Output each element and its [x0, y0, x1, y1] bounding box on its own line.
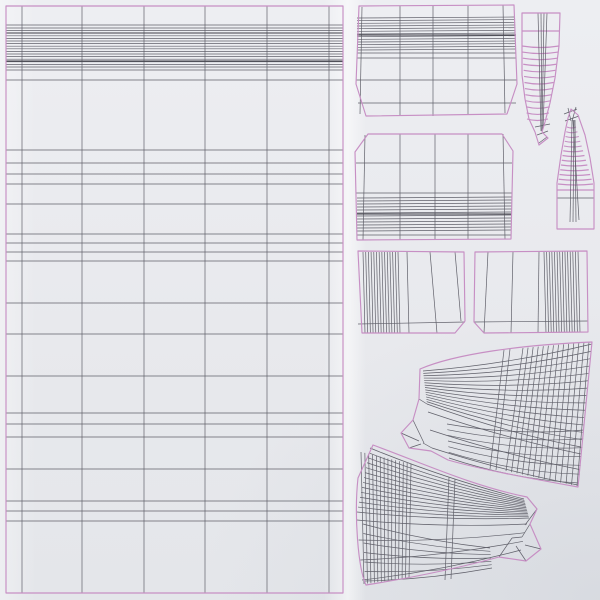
- uv-island-tassel-large: [522, 13, 560, 145]
- piece-wire-path: [484, 252, 488, 333]
- piece-outline-path: [356, 5, 517, 116]
- piece-wire-path: [357, 25, 515, 26]
- piece-outline-path: [523, 58, 557, 60]
- piece-wire-path: [385, 252, 387, 333]
- piece-wire-path: [503, 5, 505, 113]
- piece-wire-path: [357, 197, 512, 198]
- piece-wire-path: [363, 252, 365, 333]
- piece-wire-path: [357, 20, 515, 21]
- piece-wire-path: [363, 135, 365, 240]
- piece-wire-path: [427, 402, 582, 440]
- piece-outline-path: [6, 6, 343, 593]
- piece-outline-path: [525, 83, 554, 85]
- piece-wire-path: [357, 221, 511, 222]
- piece-outline-path: [523, 64, 556, 66]
- piece-outline-path: [522, 52, 558, 54]
- uv-island-pleat-strip-left: [358, 251, 465, 333]
- piece-wire-path: [406, 463, 408, 578]
- piece-wire-path: [557, 252, 559, 333]
- piece-wire-path: [365, 565, 492, 572]
- piece-wire-path: [387, 252, 389, 333]
- piece-wire-path: [525, 545, 541, 549]
- piece-outline-path: [565, 141, 581, 142]
- piece-outline-path: [524, 76, 554, 78]
- piece-wire-path: [561, 343, 574, 482]
- piece-wire-path: [570, 121, 572, 222]
- piece-wire-path: [572, 342, 584, 484]
- uv-island-main-panel: [6, 6, 343, 593]
- piece-wire-path: [503, 134, 505, 239]
- piece-wire-path: [357, 30, 515, 31]
- piece-wire-path: [449, 458, 579, 483]
- piece-wire-path: [455, 252, 461, 321]
- piece-wire-path: [516, 546, 526, 561]
- piece-wire-path: [361, 452, 364, 584]
- piece-outline-path: [559, 179, 592, 180]
- piece-wire-path: [535, 124, 550, 127]
- piece-wire-path: [570, 251, 572, 332]
- piece-outline-path: [522, 46, 559, 48]
- piece-wire-path: [573, 251, 575, 332]
- piece-wire-path: [357, 200, 512, 201]
- piece-outline-path: [526, 101, 551, 103]
- piece-wire-path: [357, 227, 511, 228]
- uv-island-swag-lower: [356, 445, 541, 585]
- piece-wire-path: [449, 452, 580, 474]
- piece-wire-path: [572, 107, 576, 121]
- piece-wire-path: [390, 252, 392, 333]
- piece-wire-path: [399, 461, 400, 579]
- uv-island-pleat-strip-right: [474, 251, 588, 333]
- piece-wire-path: [357, 218, 511, 219]
- piece-wire-path: [357, 22, 515, 23]
- piece-outline-path: [560, 170, 589, 171]
- piece-wire-path: [427, 404, 581, 447]
- piece-wire-path: [393, 252, 395, 333]
- piece-outline-path: [526, 107, 550, 109]
- piece-wire-path: [474, 321, 588, 322]
- uv-layout: [0, 0, 600, 600]
- piece-wire-path: [371, 252, 373, 333]
- piece-outline-path: [563, 151, 583, 152]
- piece-wire-path: [413, 420, 424, 443]
- piece-wire-path: [552, 252, 554, 333]
- piece-wire-path: [560, 252, 562, 333]
- piece-wire-path: [423, 443, 432, 448]
- piece-wire-path: [363, 534, 490, 552]
- piece-wire-path: [538, 252, 539, 333]
- piece-wire-path: [409, 444, 421, 448]
- piece-wire-path: [357, 44, 516, 45]
- piece-wire-path: [357, 17, 515, 18]
- piece-wire-path: [359, 533, 525, 541]
- piece-wire-path: [357, 38, 516, 39]
- piece-wire-path: [578, 251, 580, 332]
- piece-wire-path: [565, 251, 567, 332]
- piece-wire-path: [575, 251, 577, 332]
- piece-outline-path: [527, 113, 549, 115]
- piece-wire-path: [376, 252, 378, 333]
- piece-outline-path: [566, 137, 579, 138]
- piece-wire-path: [374, 252, 376, 333]
- piece-wire-path: [357, 212, 512, 213]
- piece-outline-path: [525, 89, 553, 91]
- piece-wire-path: [566, 343, 579, 484]
- uv-island-top-band-panel: [356, 5, 517, 116]
- piece-outline-path: [567, 127, 576, 128]
- piece-outline-path: [525, 95, 551, 97]
- piece-outline-path: [564, 146, 582, 147]
- piece-wire-path: [522, 524, 530, 537]
- piece-wire-path: [357, 203, 512, 204]
- piece-wire-path: [447, 424, 584, 432]
- piece-wire-path: [511, 252, 513, 333]
- piece-wire-path: [357, 215, 511, 216]
- piece-outline-path: [561, 165, 587, 166]
- piece-wire-path: [366, 252, 368, 333]
- piece-wire-path: [384, 458, 385, 582]
- piece-wire-path: [365, 568, 492, 581]
- piece-wire-path: [357, 36, 516, 37]
- piece-wire-path: [357, 46, 516, 47]
- piece-wire-path: [358, 322, 465, 324]
- piece-wire-path: [357, 224, 511, 225]
- piece-wire-path: [577, 342, 589, 486]
- piece-wire-path: [369, 454, 371, 583]
- piece-wire-path: [357, 33, 516, 34]
- piece-wire-path: [357, 520, 527, 525]
- piece-wire-path: [379, 252, 381, 333]
- piece-outline-path: [560, 175, 591, 176]
- piece-wire-path: [568, 251, 570, 332]
- piece-wire-path: [409, 464, 411, 578]
- piece-wire-path: [430, 252, 437, 333]
- piece-wire-path: [357, 206, 512, 207]
- piece-wire-path: [554, 252, 556, 333]
- piece-wire-path: [407, 252, 409, 333]
- piece-wire-path: [357, 230, 511, 231]
- piece-wire-path: [357, 209, 512, 210]
- piece-wire-path: [398, 252, 400, 333]
- piece-wire-path: [419, 399, 427, 404]
- piece-wire-path: [402, 462, 403, 579]
- piece-wire-path: [382, 252, 384, 333]
- piece-wire-path: [373, 455, 375, 583]
- piece-wire-path: [357, 49, 516, 50]
- piece-wire-path: [357, 28, 515, 29]
- piece-wire-path: [426, 397, 583, 425]
- piece-wire-path: [544, 252, 546, 333]
- piece-wire-path: [395, 252, 397, 333]
- uv-island-lower-band-panel: [355, 134, 513, 240]
- piece-wire-path: [425, 388, 587, 397]
- uv-island-swag-upper: [401, 342, 592, 487]
- piece-wire-path: [562, 251, 564, 332]
- uv-island-tassel-small: [557, 107, 594, 229]
- piece-wire-path: [549, 252, 551, 333]
- piece-wire-path: [512, 537, 522, 538]
- piece-wire-path: [368, 252, 370, 333]
- piece-wire-path: [357, 41, 516, 42]
- piece-wire-path: [547, 252, 549, 333]
- piece-wire-path: [363, 524, 490, 548]
- uv-layout-svg: [0, 0, 600, 600]
